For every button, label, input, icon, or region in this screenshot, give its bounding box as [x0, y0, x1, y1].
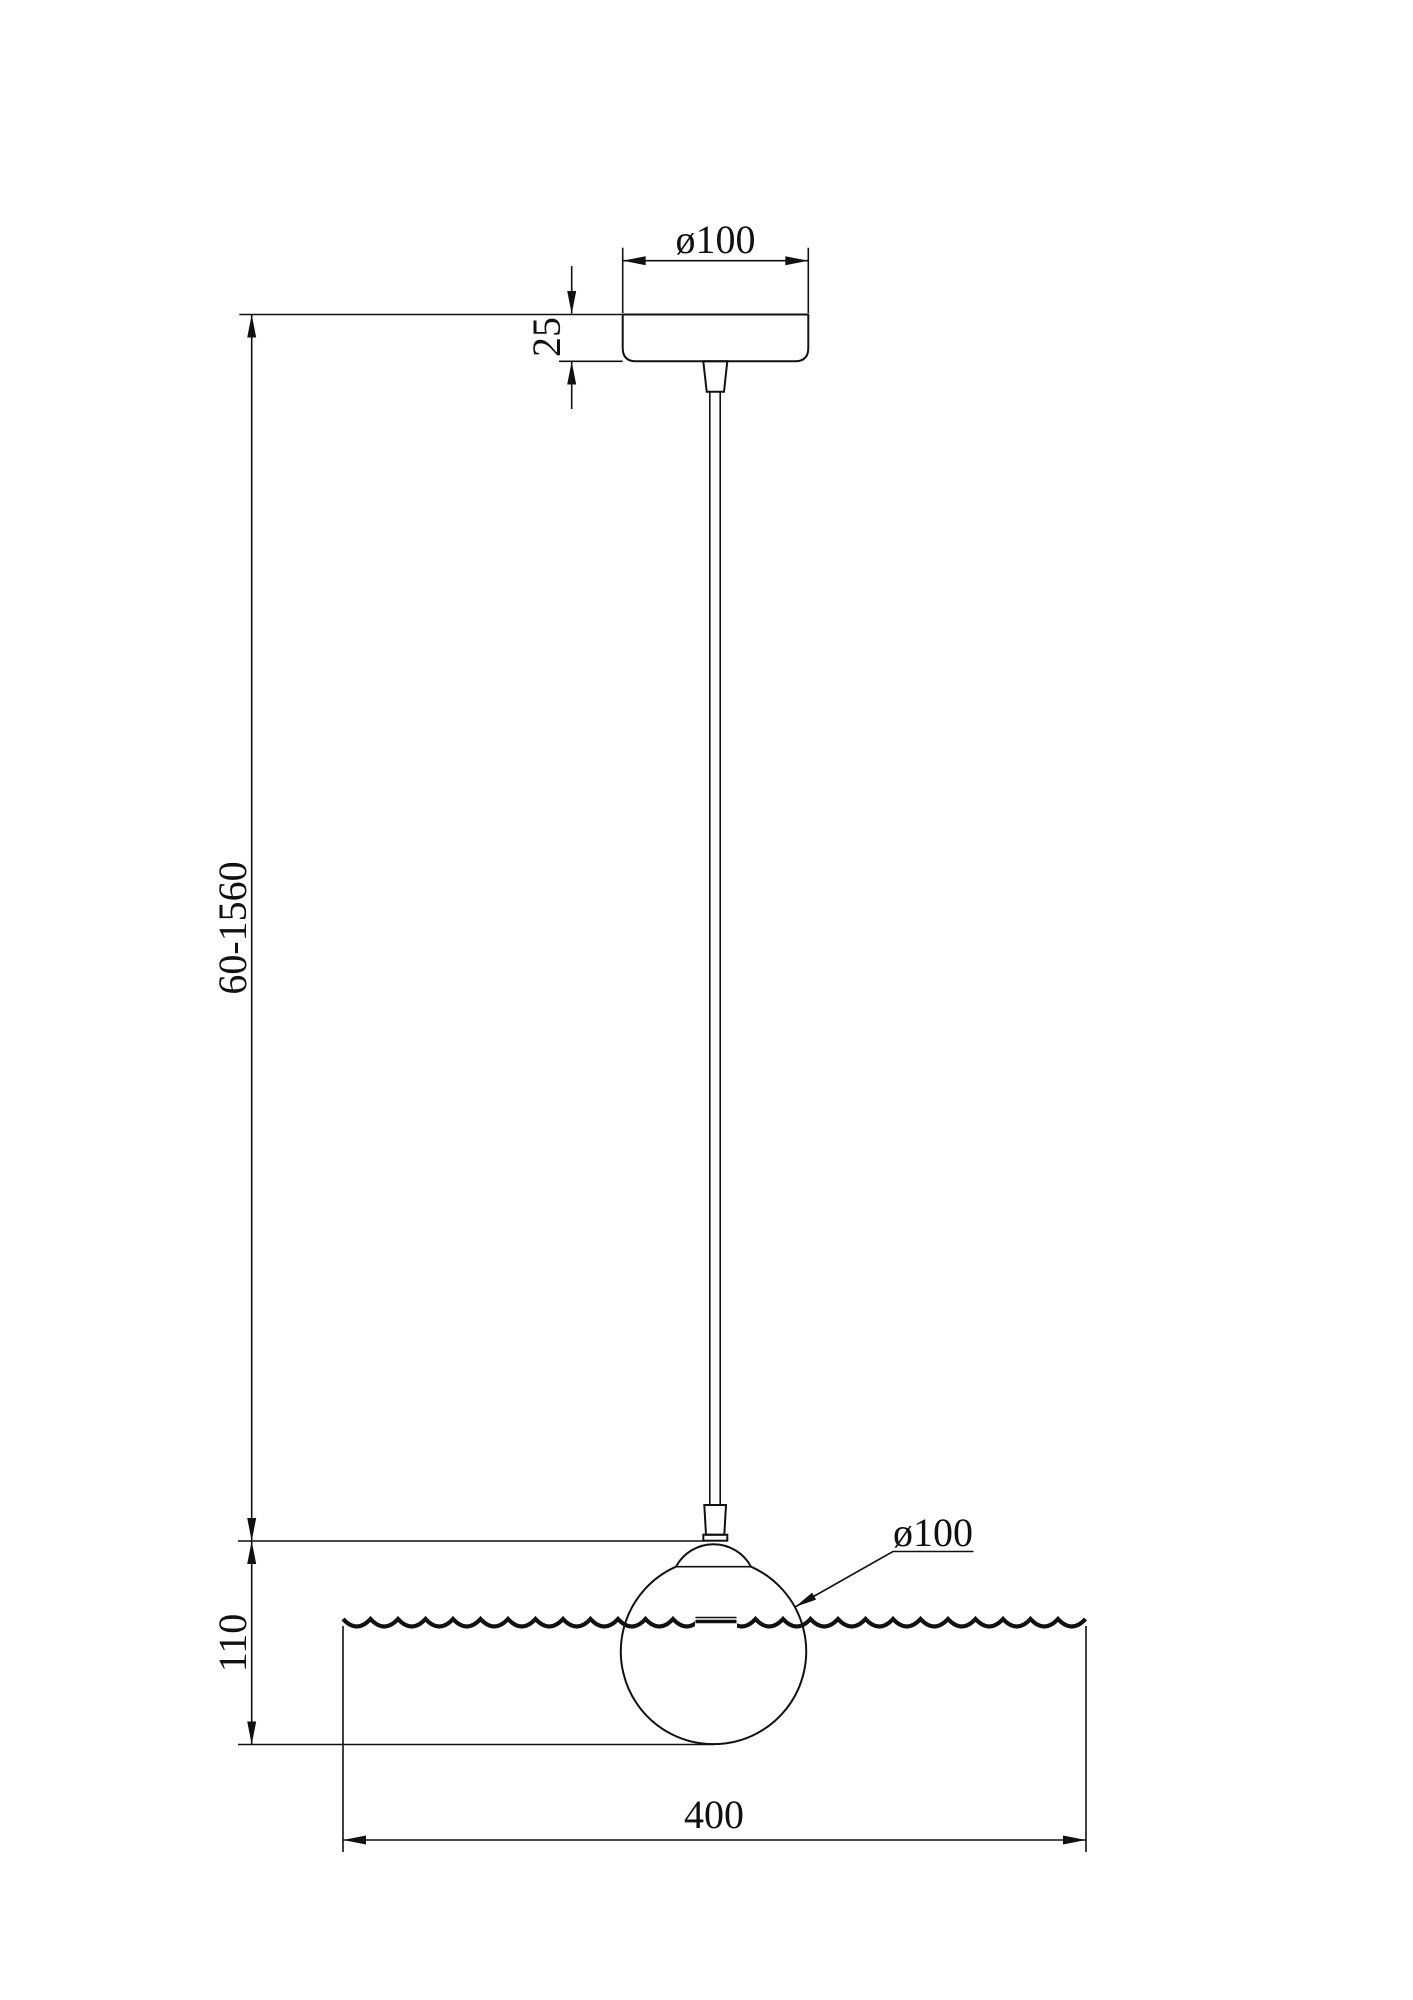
arrowhead-down [247, 1722, 256, 1745]
canopy-stem [703, 361, 727, 391]
canopy-outline [623, 315, 809, 362]
dimension-label: ø100 [893, 1510, 973, 1555]
pendant-lamp-technical-drawing: ø100 25 60-1560 110 ø100 400 [0, 0, 1413, 2000]
dim-canopy-diameter: ø100 [623, 217, 809, 313]
arrowhead-up [247, 1541, 256, 1564]
glass-sphere-outline [621, 1567, 806, 1744]
dim-canopy-height: 25 [524, 266, 576, 409]
dim-panel-width: 400 [343, 1626, 1086, 1852]
arrowhead-left [343, 1836, 366, 1845]
dimension-label: 400 [684, 1792, 744, 1837]
socket-dome [676, 1544, 751, 1567]
arrowhead-down [567, 291, 576, 314]
dim-suspension-length: 60-1560 [210, 315, 256, 1542]
arrowhead-right [1063, 1836, 1086, 1845]
dimension-label: 110 [210, 1614, 255, 1673]
leader-line [795, 1552, 974, 1608]
technical-drawing-page: ø100 25 60-1560 110 ø100 400 [0, 0, 1413, 2000]
arrowhead-left [623, 256, 646, 265]
reference-lines [238, 315, 714, 1745]
ceiling-canopy [623, 315, 809, 392]
leader-arrowhead [795, 1593, 816, 1607]
dimension-label: ø100 [676, 217, 756, 262]
socket-ring [703, 1535, 727, 1541]
socket-body [704, 1505, 726, 1535]
dimension-label: 60-1560 [210, 861, 255, 994]
dim-shade-drop: 110 [210, 1541, 256, 1745]
suspension-cable [710, 392, 720, 1505]
arrowhead-up [247, 315, 256, 338]
arrowhead-down [247, 1518, 256, 1541]
lamp-socket [676, 1505, 751, 1567]
dimension-label: 25 [524, 317, 569, 357]
wavy-panel [343, 1610, 1086, 1630]
arrowhead-up [567, 362, 576, 385]
arrowhead-right [785, 256, 808, 265]
dim-shade-diameter: ø100 [795, 1510, 974, 1607]
